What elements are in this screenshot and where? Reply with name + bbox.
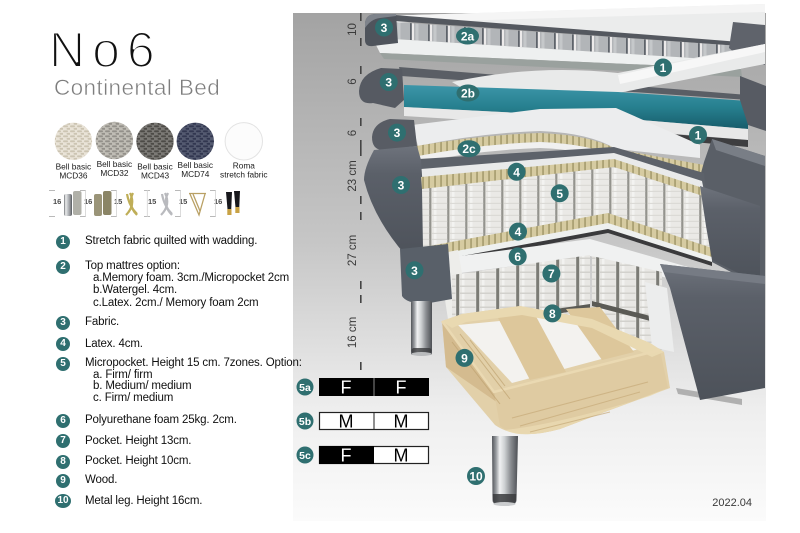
svg-text:M: M: [394, 412, 409, 432]
svg-text:2c: 2c: [462, 142, 476, 156]
svg-text:4: 4: [513, 165, 520, 179]
svg-text:6: 6: [514, 250, 521, 264]
svg-text:5b: 5b: [299, 416, 311, 428]
svg-text:2022.04: 2022.04: [712, 497, 752, 509]
svg-text:8: 8: [549, 307, 556, 321]
svg-text:23 cm: 23 cm: [347, 160, 359, 191]
svg-text:2b: 2b: [461, 87, 475, 101]
svg-text:5c: 5c: [299, 450, 311, 462]
svg-text:7: 7: [548, 267, 555, 281]
svg-text:27 cm: 27 cm: [347, 235, 359, 266]
svg-text:3: 3: [398, 179, 405, 193]
svg-text:10: 10: [347, 23, 359, 36]
svg-text:5a: 5a: [299, 382, 311, 394]
svg-text:1: 1: [660, 61, 667, 75]
svg-text:M: M: [339, 412, 354, 432]
svg-text:10: 10: [469, 470, 483, 484]
svg-text:6: 6: [347, 78, 359, 84]
svg-text:3: 3: [411, 264, 418, 278]
svg-text:3: 3: [381, 21, 388, 35]
svg-text:5: 5: [556, 187, 563, 201]
svg-text:2a: 2a: [461, 30, 475, 44]
svg-text:6: 6: [347, 130, 359, 136]
svg-text:16 cm: 16 cm: [347, 317, 359, 348]
svg-text:9: 9: [461, 351, 468, 365]
svg-text:M: M: [394, 446, 409, 466]
svg-text:3: 3: [394, 126, 401, 140]
svg-text:4: 4: [515, 225, 522, 239]
svg-text:1: 1: [695, 129, 702, 143]
svg-text:3: 3: [385, 76, 392, 90]
svg-text:F: F: [341, 446, 352, 466]
svg-text:F: F: [396, 378, 407, 398]
svg-text:F: F: [341, 378, 352, 398]
